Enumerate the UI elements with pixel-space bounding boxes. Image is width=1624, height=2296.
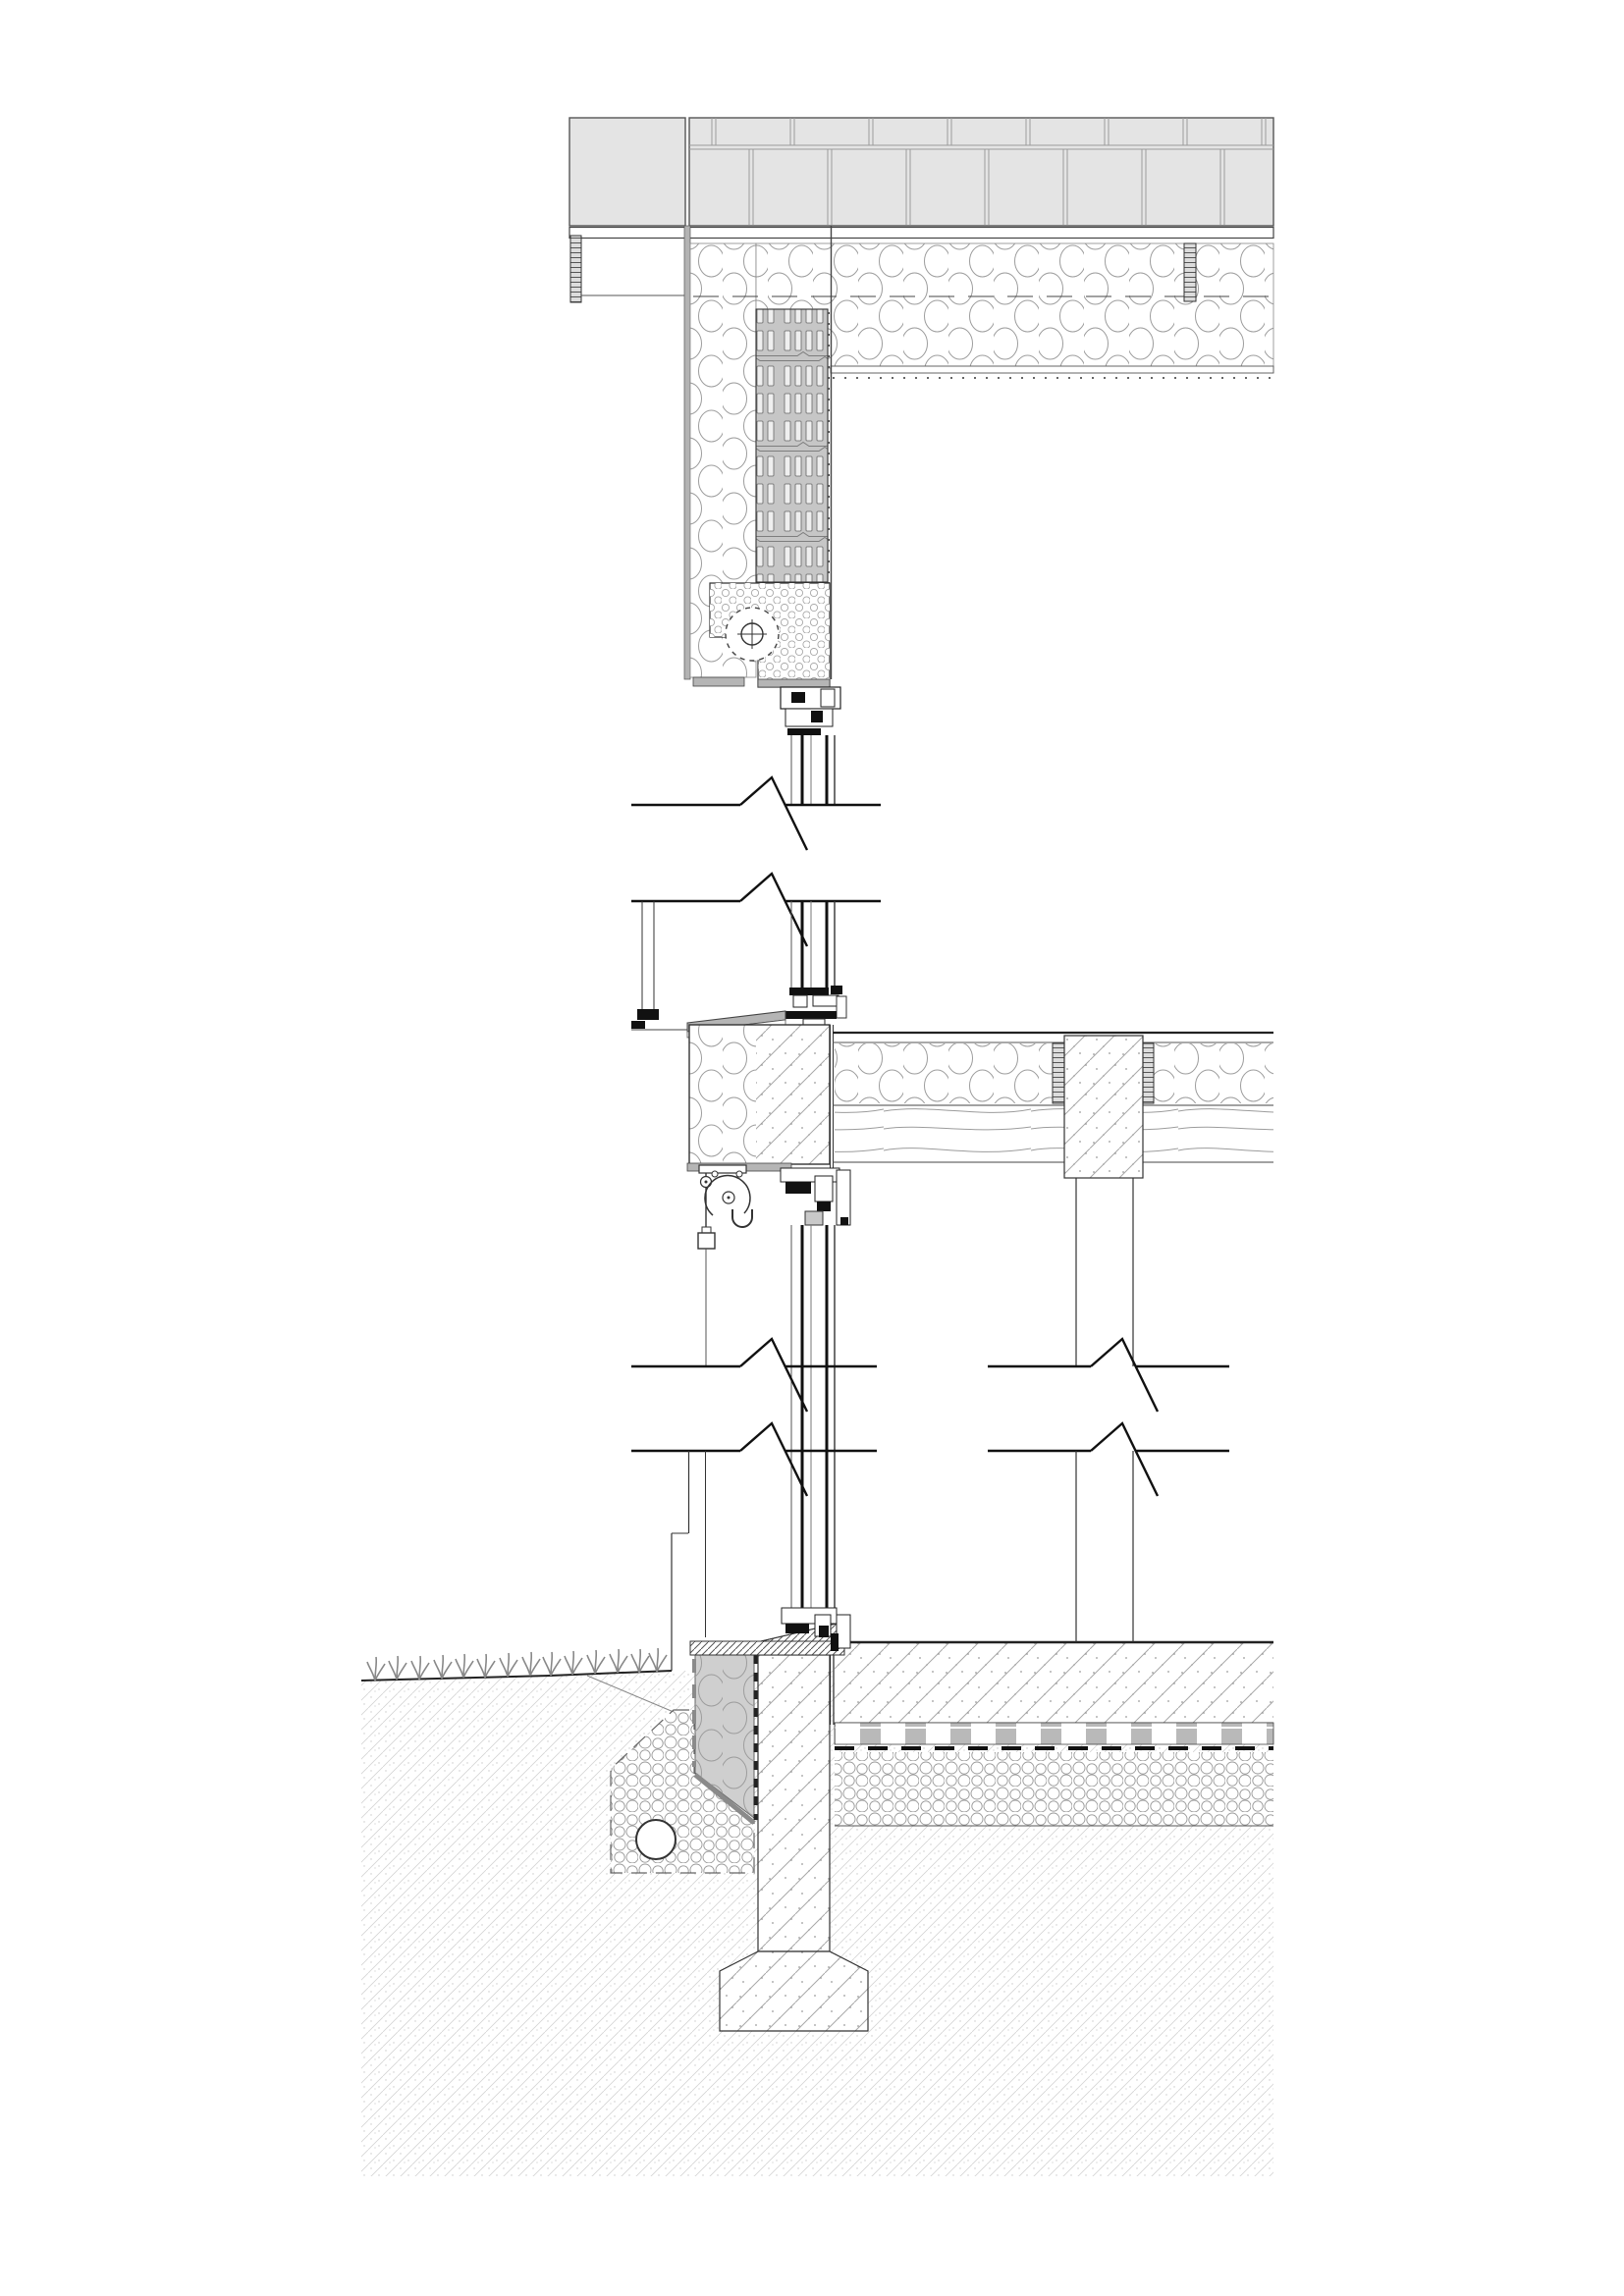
perforated-brick-column <box>756 309 828 582</box>
detail-roof-ceiling-junction <box>569 118 1273 850</box>
timber-deck-grain <box>835 1105 1273 1162</box>
shutter-soffit-plate-left <box>693 677 744 686</box>
plinth-concrete-wall <box>758 1655 830 1951</box>
break-line-3-left <box>631 1339 877 1412</box>
drain-pipe <box>636 1820 676 1859</box>
edge-beam-concrete <box>756 1025 830 1164</box>
fascia-wood-block <box>570 236 581 302</box>
floor-blocking-left <box>1053 1043 1064 1103</box>
glazing-lines-mid <box>791 901 835 991</box>
ceiling-finish-board <box>831 366 1273 373</box>
break-line-4-right <box>988 1423 1229 1496</box>
roof-slab-left-panel <box>569 118 685 226</box>
break-line-1 <box>631 777 881 850</box>
glazing-lines-lower <box>791 1225 835 1620</box>
concrete-pier <box>1064 1036 1143 1178</box>
break-line-3-right <box>988 1339 1229 1412</box>
break-line-4-left <box>631 1423 877 1496</box>
ceiling-wood-blocking <box>1184 243 1196 301</box>
window-sill-frame <box>785 986 846 1027</box>
drawing-sheet <box>0 0 1624 2296</box>
shutter-guide-rails <box>637 901 659 1020</box>
capillary-gravel-layer <box>835 1752 1273 1826</box>
awning-pulley-assembly <box>698 1165 752 1366</box>
underslab-insulation-boards <box>835 1723 1273 1744</box>
section-detail-drawing <box>0 0 1624 2296</box>
floor-blocking-right <box>1142 1043 1154 1103</box>
floor-slab-concrete <box>835 1642 1273 1723</box>
break-line-2 <box>631 874 881 946</box>
edge-beam-insulation <box>689 1025 756 1164</box>
detail-floor-edge-junction <box>631 874 1273 1620</box>
glazing-lines-upper <box>791 735 835 805</box>
lower-window-head-frame <box>781 1168 850 1225</box>
threshold-sill-board <box>690 1641 844 1655</box>
awning-mount-plate <box>631 1021 645 1029</box>
shutter-soffit-plate-right <box>758 679 830 687</box>
window-head-frame <box>781 687 840 735</box>
roof-paver-field <box>689 118 1273 226</box>
interior-plaster-strip <box>684 226 690 679</box>
roof-deck-board <box>569 228 1273 239</box>
detail-foundation-plinth-junction <box>361 1423 1273 2176</box>
strip-footing <box>720 1951 868 2031</box>
